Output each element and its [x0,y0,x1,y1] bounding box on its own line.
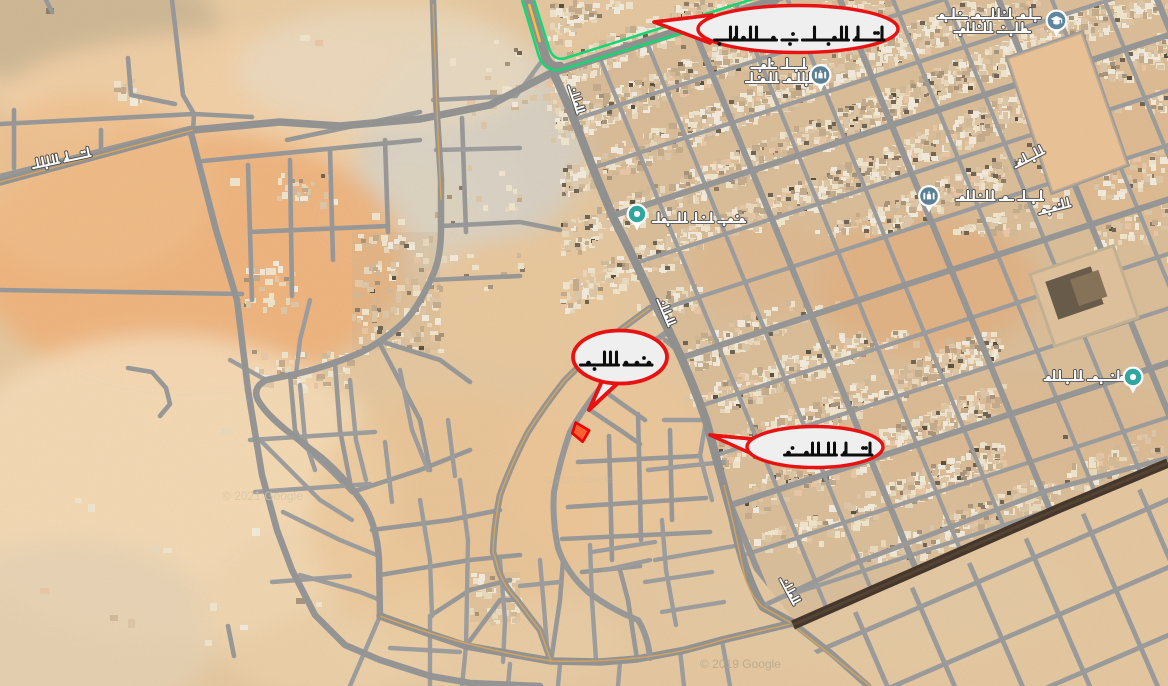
svg-text:© 2021 Google: © 2021 Google [222,489,303,503]
svg-text:© 2019 Google: © 2019 Google [700,657,781,671]
svg-text:© 2021 Google: © 2021 Google [545,475,613,486]
